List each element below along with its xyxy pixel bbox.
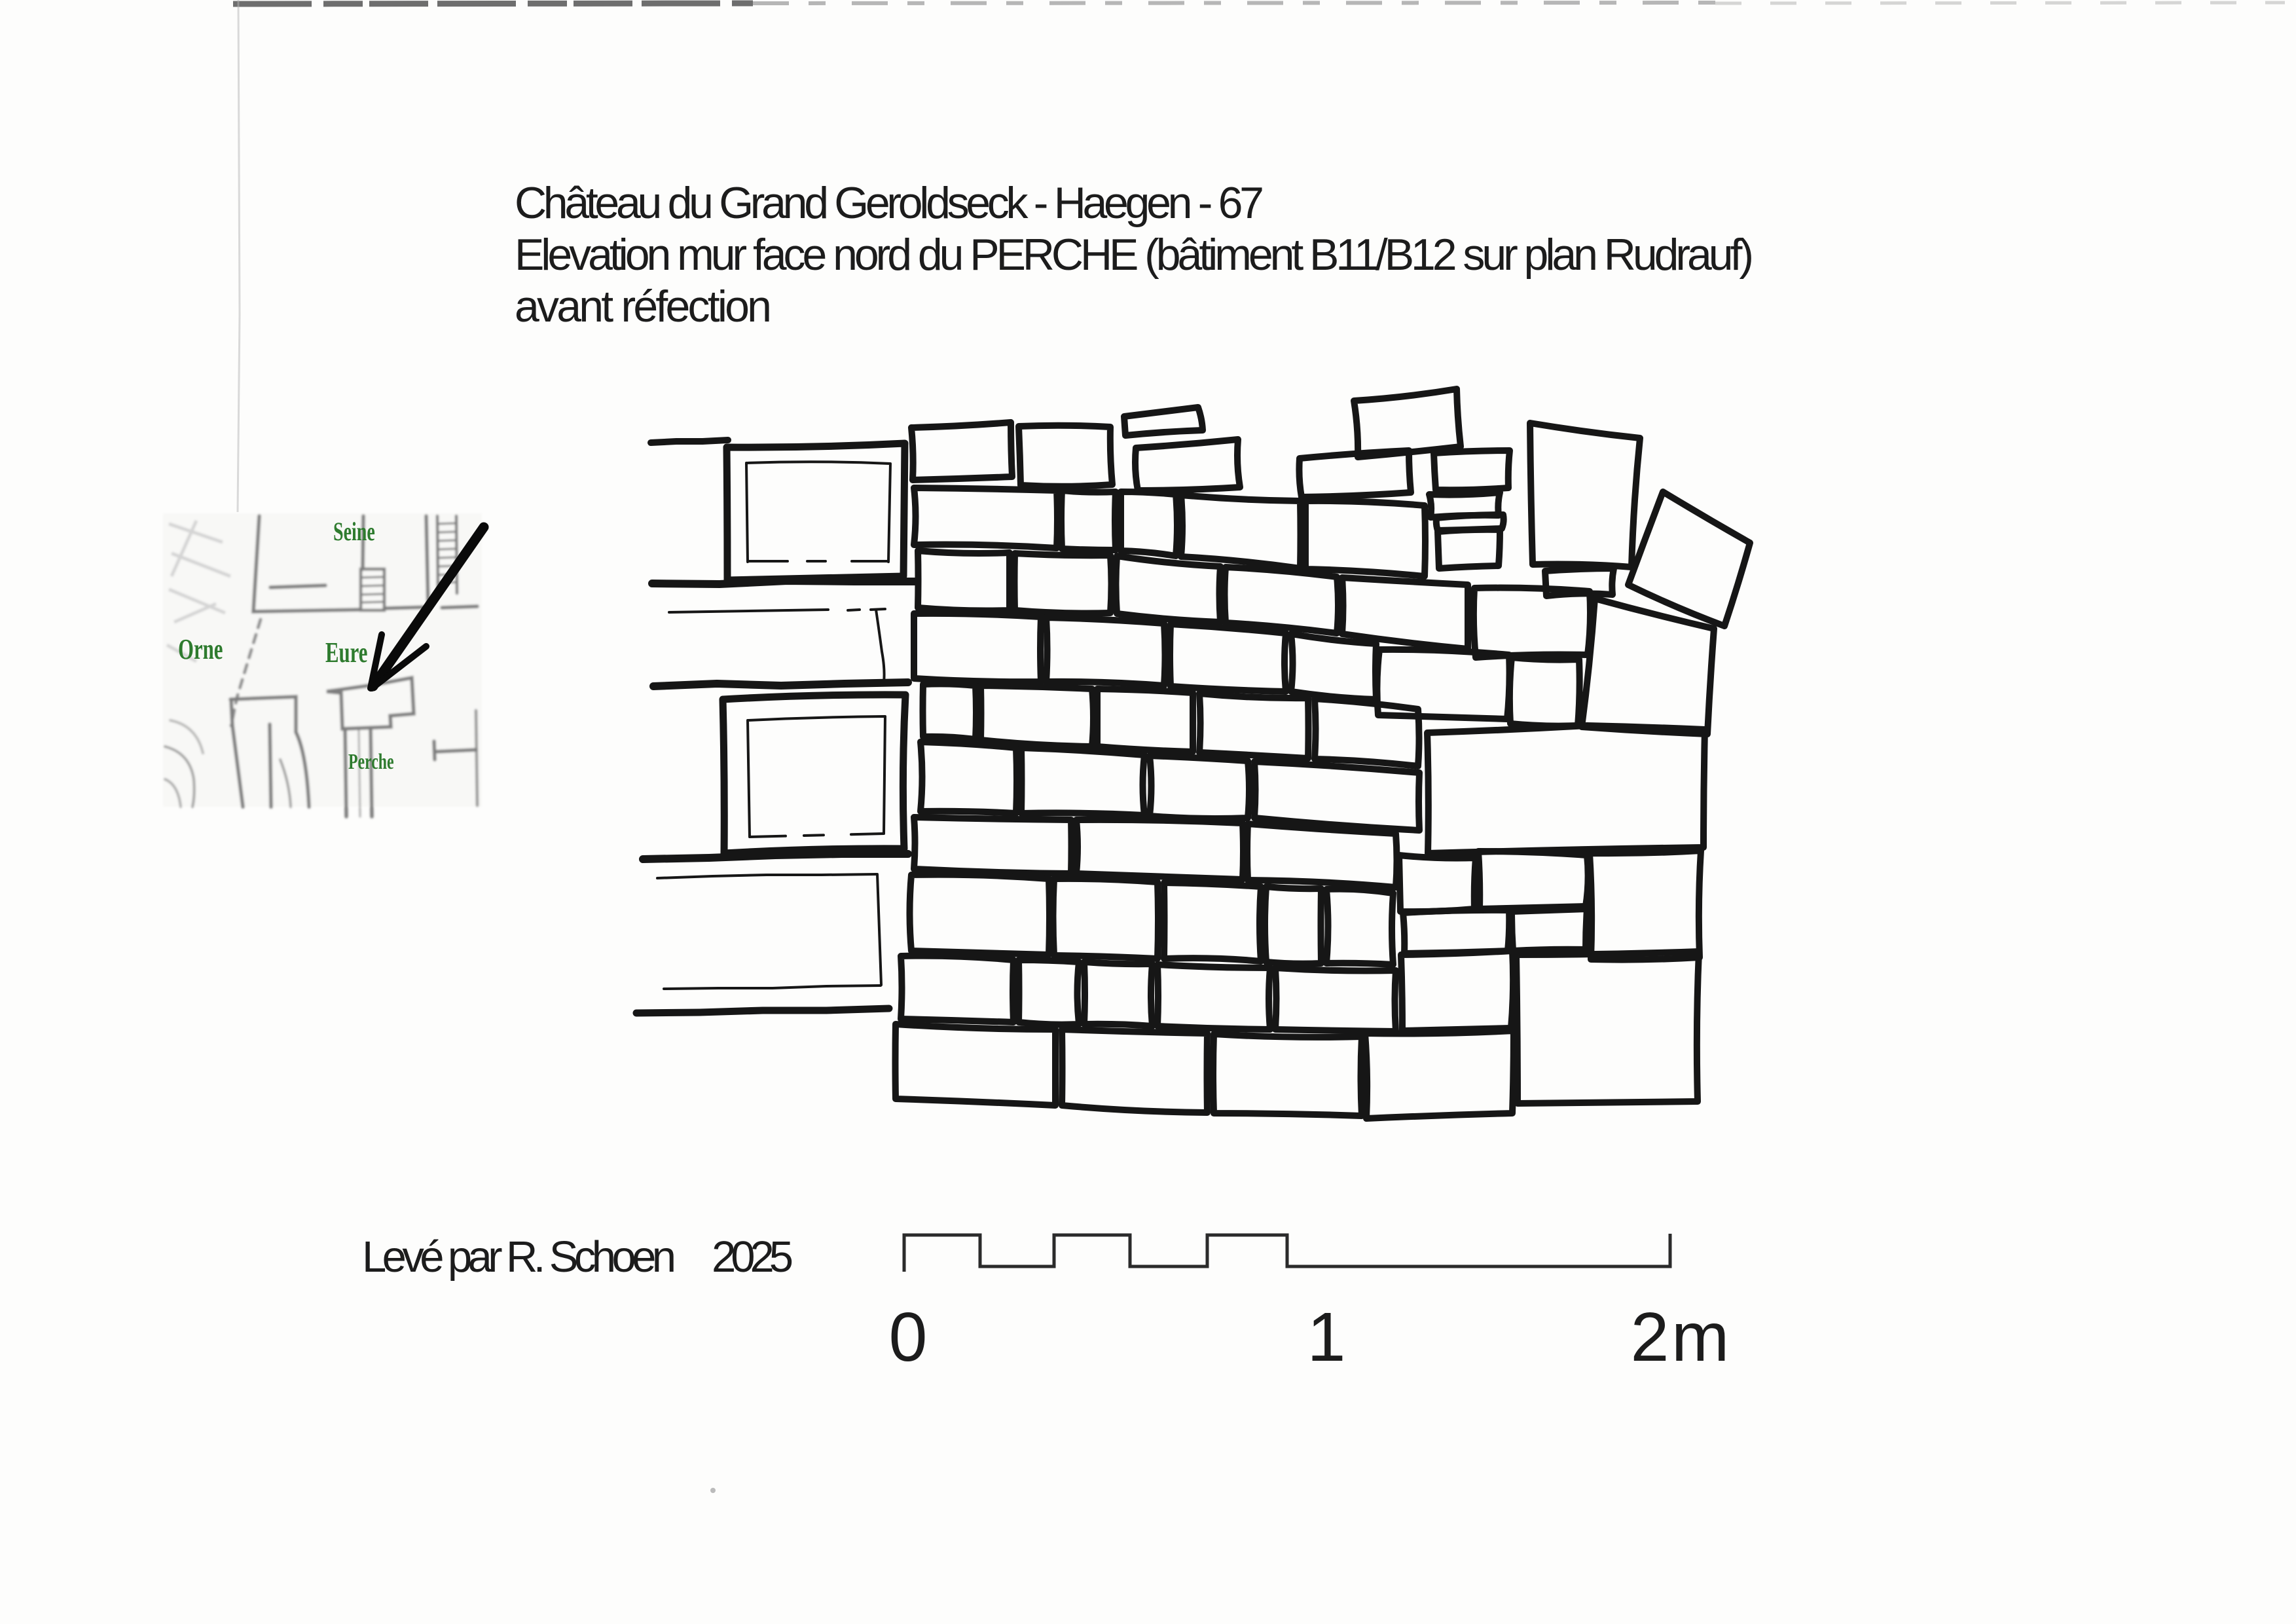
svg-text:Levé par R. Schoen: Levé par R. Schoen <box>362 1232 676 1282</box>
svg-text:Eure: Eure <box>325 637 367 669</box>
svg-text:Seine: Seine <box>333 517 375 546</box>
svg-text:avant réfection: avant réfection <box>515 282 772 331</box>
svg-text:Elevation mur face nord du PER: Elevation mur face nord du PERCHE (bâtim… <box>515 230 1754 280</box>
svg-text:2025: 2025 <box>712 1232 793 1282</box>
svg-text:Perche: Perche <box>348 750 394 774</box>
svg-text:0: 0 <box>889 1299 928 1376</box>
svg-text:2: 2 <box>1631 1299 1669 1376</box>
svg-text:m: m <box>1671 1299 1729 1376</box>
svg-text:1: 1 <box>1307 1299 1346 1376</box>
svg-text:Orne: Orne <box>178 634 223 666</box>
svg-text:Château du Grand Geroldseck -: Château du Grand Geroldseck - Haegen - 6… <box>515 178 1264 228</box>
